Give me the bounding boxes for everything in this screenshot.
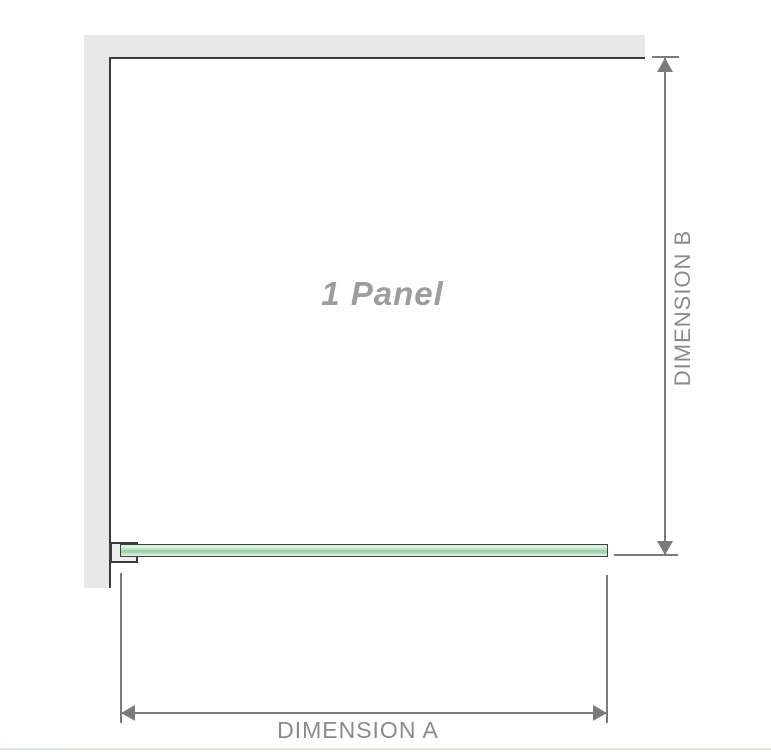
wall-top-edge-line	[109, 57, 645, 59]
dimension-a-left-extension-line	[120, 573, 122, 723]
dimension-b-line	[664, 58, 666, 555]
footer-divider-accent	[8, 748, 64, 750]
arrow-left-icon	[121, 705, 135, 721]
dimension-a-label: DIMENSION A	[258, 717, 458, 743]
arrow-up-icon	[657, 58, 673, 72]
wall-left-strip	[84, 35, 109, 588]
panel-count-label: 1 Panel	[300, 274, 465, 314]
dimension-diagram: 1 Panel DIMENSION B DIMENSION A	[0, 0, 771, 755]
wall-top-strip	[84, 35, 645, 57]
dimension-a-right-extension-line	[606, 575, 608, 723]
glass-panel	[120, 544, 608, 557]
arrow-right-icon	[593, 705, 607, 721]
wall-left-edge-line	[109, 57, 111, 588]
dimension-a-line	[122, 712, 606, 714]
footer-divider-line	[0, 748, 771, 750]
arrow-down-icon	[657, 541, 673, 555]
dimension-b-label: DIMENSION B	[670, 208, 696, 408]
